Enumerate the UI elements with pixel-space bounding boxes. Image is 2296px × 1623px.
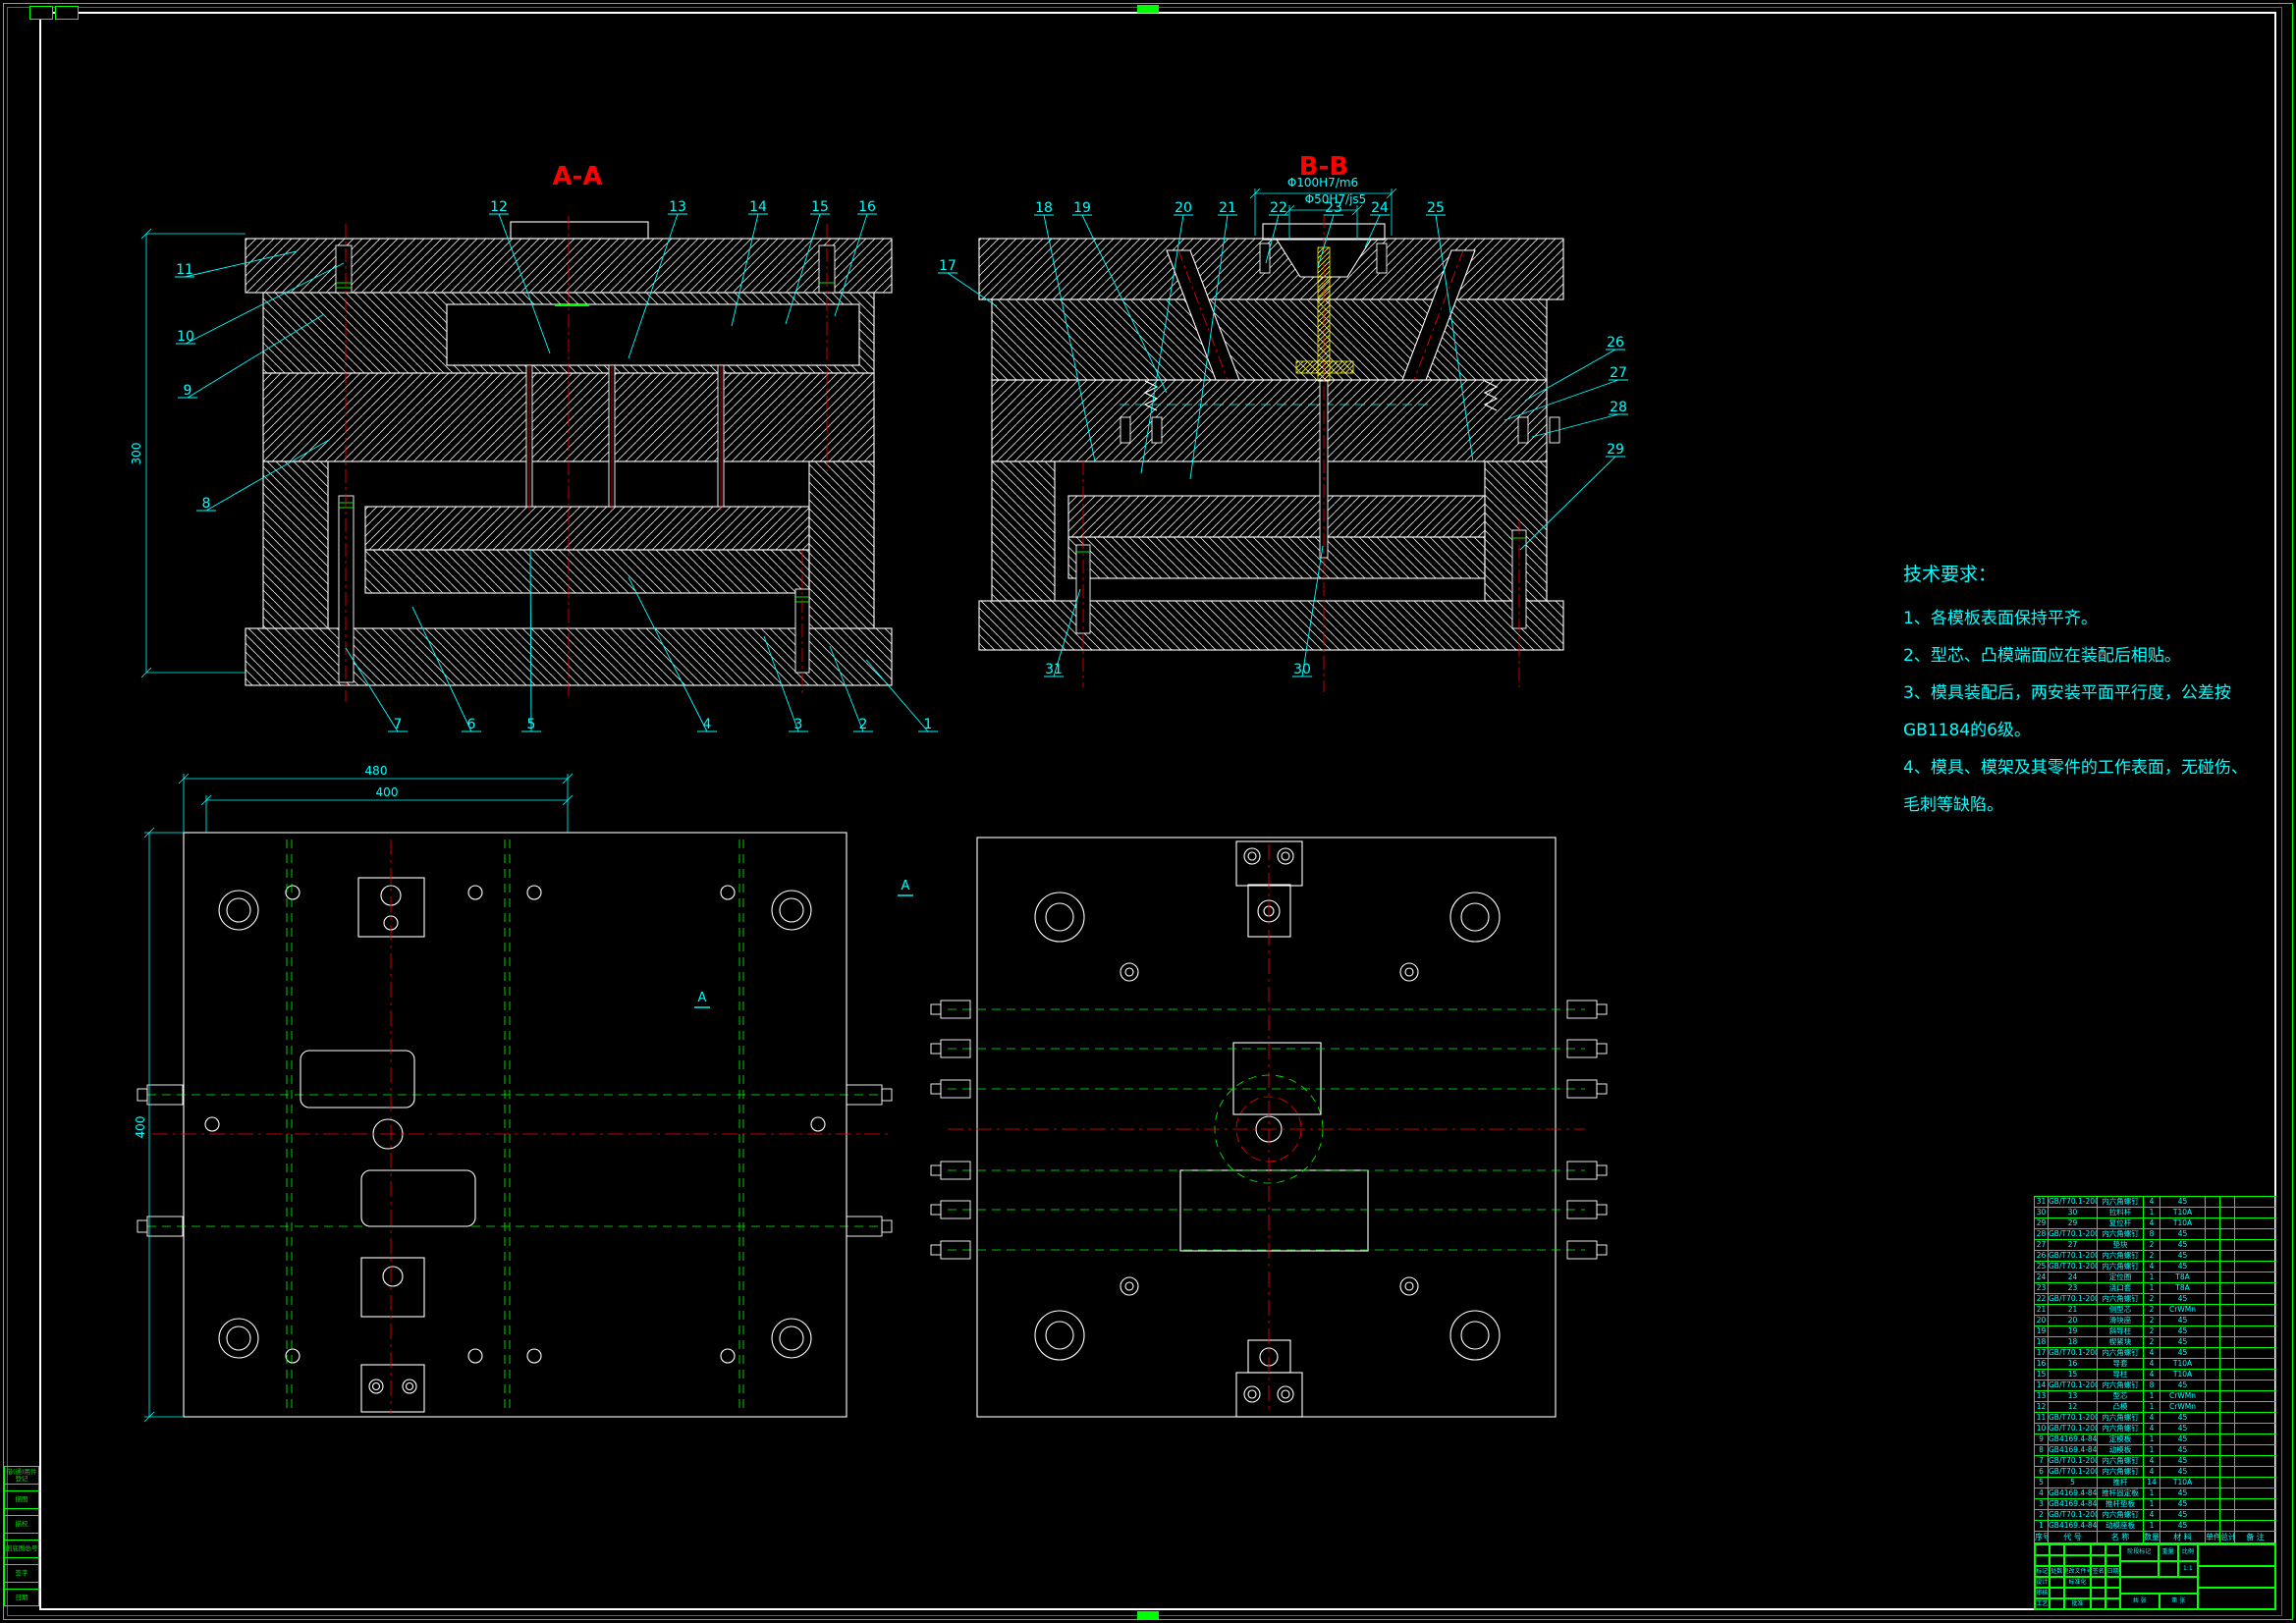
screw-holes [205, 886, 825, 1363]
parts-table-cell: 1 [2143, 1434, 2159, 1444]
parts-table-cell [2234, 1412, 2276, 1423]
parts-table-row: 1919斜导柱245 [2034, 1325, 2276, 1336]
tech-requirements-line: 3、模具装配后，两安装平面平行度，公差按 [1903, 675, 2267, 712]
parts-table-header-cell: 数量 [2143, 1531, 2159, 1543]
parts-table-cell: 45 [2159, 1336, 2205, 1347]
parts-table-row: 28GB/T70.1-2000内六角螺钉845 [2034, 1228, 2276, 1239]
parts-table-row: 2929复位杆4T10A [2034, 1217, 2276, 1228]
section-plane-mark: A [902, 879, 910, 893]
side-bolts [137, 1085, 892, 1236]
parts-table-cell [2219, 1261, 2234, 1271]
section-label: A-A [552, 162, 602, 191]
section-view-aa [141, 216, 892, 702]
parts-table-cell [2205, 1250, 2219, 1261]
parts-table-cell [2234, 1228, 2276, 1239]
parts-table-cell: 9 [2034, 1434, 2048, 1444]
parts-table-cell: 16 [2048, 1358, 2097, 1369]
drawing-sheet: 1213141516111098765432117181920212223242… [0, 0, 2296, 1623]
parts-table-cell: 定位圈 [2097, 1271, 2143, 1282]
tech-requirements-title: 技术要求： [1903, 560, 2267, 586]
callout-number: 1 [924, 717, 933, 732]
parts-table-cell: 22 [2034, 1293, 2048, 1304]
parts-table-row: 55推杆14T10A [2034, 1477, 2276, 1488]
parts-table-cell: CrWMn [2159, 1401, 2205, 1412]
parts-table-cell: 45 [2159, 1261, 2205, 1271]
callout-number: 21 [1219, 200, 1236, 216]
parts-table-cell: 19 [2034, 1325, 2048, 1336]
parts-list: 31GB/T70.1-2000内六角螺钉4453030拉料杆1T10A2929复… [2034, 1196, 2276, 1543]
parts-table-cell [2205, 1336, 2219, 1347]
parts-table-cell [2234, 1293, 2276, 1304]
parts-table-cell: 1 [2143, 1207, 2159, 1217]
parts-table-cell [2234, 1207, 2276, 1217]
parts-table-cell [2219, 1412, 2234, 1423]
parts-table-cell: GB4169.4-84 [2048, 1444, 2097, 1455]
parts-table-cell [2205, 1347, 2219, 1358]
tb-mark: 标记 [2035, 1566, 2050, 1577]
parts-table-cell: 45 [2159, 1466, 2205, 1477]
parts-table-cell: 2 [2034, 1509, 2048, 1520]
parts-table-cell: 15 [2048, 1369, 2097, 1380]
parts-table-cell: 23 [2048, 1282, 2097, 1293]
parts-table-cell: GB4169.4-84 [2048, 1498, 2097, 1509]
parts-table-cell: 45 [2159, 1434, 2205, 1444]
callout-number: 25 [1427, 200, 1445, 216]
parts-table-cell [2219, 1271, 2234, 1282]
parts-table-cell: 27 [2048, 1239, 2097, 1250]
parts-table-cell: 45 [2159, 1250, 2205, 1261]
parts-table-cell [2205, 1434, 2219, 1444]
callout-number: 19 [1073, 200, 1091, 216]
parts-table-cell [2234, 1401, 2276, 1412]
parts-table-cell: 18 [2034, 1336, 2048, 1347]
tb-design: 设计 [2035, 1577, 2050, 1588]
parts-table-cell: 复位杆 [2097, 1217, 2143, 1228]
margin-block-gap [4, 1508, 39, 1515]
tb-approve: 批准 [2064, 1598, 2092, 1609]
parts-table-cell: 12 [2048, 1401, 2097, 1412]
parts-table-cell [2219, 1423, 2234, 1434]
parts-table-cell [2219, 1466, 2234, 1477]
callout-number: 22 [1270, 200, 1287, 216]
parts-table-cell: 推杆 [2097, 1477, 2143, 1488]
parts-table-cell [2219, 1196, 2234, 1207]
parts-table-cell [2234, 1466, 2276, 1477]
plan-view-right [931, 838, 1607, 1417]
tech-requirements-line: 2、型芯、凸模端面应在装配后相贴。 [1903, 637, 2267, 675]
margin-block-label: 日期 [4, 1589, 39, 1606]
dimension-label: Φ50H7/js5 [1305, 192, 1367, 206]
parts-table-cell [2205, 1325, 2219, 1336]
tb-count: 处数 [2050, 1566, 2064, 1577]
parts-table-cell: 18 [2048, 1336, 2097, 1347]
parts-table-cell: 26 [2034, 1250, 2048, 1261]
parts-table-cell [2234, 1358, 2276, 1369]
parts-table-cell [2219, 1488, 2234, 1498]
parts-table-cell: 23 [2034, 1282, 2048, 1293]
parts-table-cell [2219, 1358, 2234, 1369]
section-plane-mark: A [698, 991, 707, 1005]
parts-table-cell [2205, 1315, 2219, 1325]
parts-table-cell: 内六角螺钉 [2097, 1412, 2143, 1423]
callout-number: 6 [467, 717, 476, 732]
parts-table-cell: 1 [2143, 1444, 2159, 1455]
parts-table-cell: 45 [2159, 1239, 2205, 1250]
parts-table-row: 2727垫块245 [2034, 1239, 2276, 1250]
parts-table-cell [2205, 1217, 2219, 1228]
tb-date: 日期 [2105, 1566, 2120, 1577]
parts-table-cell: 2 [2143, 1239, 2159, 1250]
margin-block-label: 签字 [4, 1564, 39, 1582]
parts-table-cell: 4 [2143, 1423, 2159, 1434]
parts-table-row: 1212凸模1CrWMn [2034, 1401, 2276, 1412]
tb-drawing-name-box [2198, 1544, 2275, 1566]
parts-table-cell: 内六角螺钉 [2097, 1196, 2143, 1207]
parts-table-cell: 45 [2159, 1380, 2205, 1390]
parts-table-cell: GB/T70.1-2000 [2048, 1380, 2097, 1390]
parts-table-cell [2205, 1380, 2219, 1390]
parts-table-cell [2205, 1488, 2219, 1498]
parts-table-row: 22GB/T70.1-2000内六角螺钉245 [2034, 1293, 2276, 1304]
parts-table-cell: 31 [2034, 1196, 2048, 1207]
dimension-label: 480 [365, 764, 388, 778]
parts-table-header-cell: 代 号 [2048, 1531, 2097, 1543]
parts-table-row: 1818楔紧块245 [2034, 1336, 2276, 1347]
parts-table-cell: 45 [2159, 1520, 2205, 1531]
parts-table-cell [2234, 1336, 2276, 1347]
parts-table-cell [2219, 1520, 2234, 1531]
parts-table-cell: CrWMn [2159, 1304, 2205, 1315]
parts-table-cell: 45 [2159, 1444, 2205, 1455]
parts-table-cell [2219, 1498, 2234, 1509]
callout-number: 3 [794, 717, 803, 732]
parts-table-cell: 内六角螺钉 [2097, 1250, 2143, 1261]
tb-process: 工艺 [2035, 1598, 2050, 1609]
tech-requirements-line: 毛刺等缺陷。 [1903, 786, 2267, 824]
parts-table-cell [2205, 1455, 2219, 1466]
parts-table-cell: 斜导柱 [2097, 1325, 2143, 1336]
parts-table-cell: 内六角螺钉 [2097, 1261, 2143, 1271]
parts-table-row: 4GB4169.4-84推杆固定板145 [2034, 1488, 2276, 1498]
parts-table-cell: GB/T70.1-2000 [2048, 1466, 2097, 1477]
parts-table-cell [2234, 1498, 2276, 1509]
dimension-label: 400 [376, 785, 399, 799]
parts-table-cell [2219, 1477, 2234, 1488]
parts-table-cell: 45 [2159, 1455, 2205, 1466]
parts-table-row: 3030拉料杆1T10A [2034, 1207, 2276, 1217]
parts-table-cell: 4 [2143, 1217, 2159, 1228]
tb-sheets-total: 共 张 [2120, 1594, 2159, 1610]
parts-table-cell: 4 [2143, 1261, 2159, 1271]
parts-table-cell [2234, 1325, 2276, 1336]
parts-table-cell: CrWMn [2159, 1390, 2205, 1401]
parts-table-cell [2219, 1444, 2234, 1455]
parts-table-cell [2219, 1207, 2234, 1217]
parts-table-cell [2205, 1509, 2219, 1520]
parts-table-header-cell: 单件 [2205, 1531, 2219, 1543]
callout-number: 16 [858, 199, 876, 215]
parts-table-cell: 导套 [2097, 1358, 2143, 1369]
parts-table-cell: 内六角螺钉 [2097, 1293, 2143, 1304]
parts-table-cell: 13 [2048, 1390, 2097, 1401]
section-view-bb [979, 189, 1563, 692]
callout-number: 15 [811, 199, 829, 215]
parts-table-cell: 10 [2034, 1423, 2048, 1434]
parts-table-cell: 凸模 [2097, 1401, 2143, 1412]
parts-table-cell: T8A [2159, 1282, 2205, 1293]
parts-table-cell [2234, 1239, 2276, 1250]
parts-table-cell: 45 [2159, 1228, 2205, 1239]
parts-table-cell: 30 [2034, 1207, 2048, 1217]
callout-number: 18 [1035, 200, 1053, 216]
parts-table-cell: 2 [2143, 1250, 2159, 1261]
parts-table-cell: 5 [2034, 1477, 2048, 1488]
parts-table-cell: T10A [2159, 1358, 2205, 1369]
parts-table-row: 25GB/T70.1-2000内六角螺钉445 [2034, 1261, 2276, 1271]
parts-table-cell: 45 [2159, 1325, 2205, 1336]
parts-table-cell: GB/T70.1-2000 [2048, 1509, 2097, 1520]
parts-table-cell: 2 [2143, 1304, 2159, 1315]
parts-table-cell: T10A [2159, 1207, 2205, 1217]
parts-table-cell [2219, 1455, 2234, 1466]
parts-table-row: 2020滑块座245 [2034, 1315, 2276, 1325]
margin-block-gap [4, 1533, 39, 1540]
plan-view-left [137, 774, 892, 1422]
parts-table-cell: 拉料杆 [2097, 1207, 2143, 1217]
parts-table-cell: T10A [2159, 1477, 2205, 1488]
parts-table-header-cell: 材 料 [2159, 1531, 2205, 1543]
parts-table-cell: 14 [2034, 1380, 2048, 1390]
parts-table-cell [2219, 1239, 2234, 1250]
callout-number: 20 [1175, 200, 1192, 216]
callout-number: 29 [1607, 442, 1624, 458]
parts-table-row: 1313型芯1CrWMn [2034, 1390, 2276, 1401]
parts-table-cell: GB/T70.1-2000 [2048, 1455, 2097, 1466]
guide-holes [1035, 893, 1500, 1360]
tech-requirements-line: GB1184的6级。 [1903, 712, 2267, 749]
callout-number: 31 [1045, 662, 1063, 677]
callout-leader [866, 660, 928, 731]
parts-table-row: 1515导柱4T10A [2034, 1369, 2276, 1380]
parts-table-cell: 45 [2159, 1196, 2205, 1207]
parts-table-cell: 5 [2048, 1477, 2097, 1488]
parts-table-cell: 16 [2034, 1358, 2048, 1369]
parts-table-cell: 27 [2034, 1239, 2048, 1250]
parts-table-cell [2205, 1228, 2219, 1239]
parts-table-cell [2234, 1455, 2276, 1466]
margin-block-gap [4, 1484, 39, 1490]
tech-requirements-line: 1、各模板表面保持平齐。 [1903, 600, 2267, 637]
parts-table-cell [2205, 1444, 2219, 1455]
callout-number: 30 [1293, 662, 1311, 677]
parts-table-cell [2234, 1509, 2276, 1520]
parts-table-cell: 45 [2159, 1347, 2205, 1358]
parts-table-cell [2205, 1261, 2219, 1271]
parts-table-cell [2205, 1304, 2219, 1315]
callout-number: 8 [202, 496, 211, 512]
parts-table-cell: 内六角螺钉 [2097, 1455, 2143, 1466]
margin-block-label: 借(通)用件登记 [4, 1466, 39, 1484]
parts-table-cell [2219, 1293, 2234, 1304]
parts-table-row: 7GB/T70.1-2000内六角螺钉445 [2034, 1455, 2276, 1466]
parts-table-row: 17GB/T70.1-2000内六角螺钉445 [2034, 1347, 2276, 1358]
parts-table-cell: GB/T70.1-2000 [2048, 1347, 2097, 1358]
parts-table-cell: 2 [2143, 1315, 2159, 1325]
parts-table-row: 2323浇口套1T8A [2034, 1282, 2276, 1293]
margin-block-gap [4, 1557, 39, 1564]
tb-company-box [2198, 1588, 2275, 1609]
callout-number: 26 [1607, 335, 1624, 351]
parts-table-cell [2234, 1488, 2276, 1498]
callout-number: 17 [939, 258, 957, 274]
parts-table-cell: 21 [2034, 1304, 2048, 1315]
tb-weight: 重量 [2159, 1544, 2178, 1561]
parts-table-cell: GB/T70.1-2000 [2048, 1228, 2097, 1239]
parts-table-cell: 24 [2048, 1271, 2097, 1282]
parts-table-cell: GB/T70.1-2000 [2048, 1293, 2097, 1304]
parts-table-cell [2205, 1239, 2219, 1250]
parts-table-row: 11GB/T70.1-2000内六角螺钉445 [2034, 1412, 2276, 1423]
tb-scale: 比例 [2178, 1544, 2198, 1561]
parts-table-cell: T10A [2159, 1217, 2205, 1228]
parts-table-cell: 1 [2143, 1271, 2159, 1282]
parts-table-cell [2219, 1228, 2234, 1239]
parts-table-cell [2219, 1304, 2234, 1315]
parts-table-cell: 1 [2143, 1520, 2159, 1531]
parts-table-header-cell: 总计 [2219, 1531, 2234, 1543]
callout-number: 4 [703, 717, 712, 732]
parts-table-cell: 14 [2143, 1477, 2159, 1488]
parts-table-cell: 30 [2048, 1207, 2097, 1217]
parts-table-cell [2205, 1423, 2219, 1434]
parts-table-cell [2234, 1250, 2276, 1261]
tb-standardize: 标准化 [2064, 1577, 2092, 1588]
parts-table-cell [2219, 1315, 2234, 1325]
parts-table-cell [2234, 1196, 2276, 1207]
parts-table-cell: 浇口套 [2097, 1282, 2143, 1293]
parts-table-cell [2234, 1217, 2276, 1228]
parts-table-cell: 8 [2143, 1228, 2159, 1239]
margin-block-label: 描图 [4, 1490, 39, 1508]
parts-table-cell [2219, 1217, 2234, 1228]
parts-table-cell: 滑块座 [2097, 1315, 2143, 1325]
parts-table-cell [2234, 1304, 2276, 1315]
parts-table-cell: 13 [2034, 1390, 2048, 1401]
parts-table-cell [2205, 1401, 2219, 1412]
parts-table-cell: 1 [2143, 1390, 2159, 1401]
parts-table-cell: T8A [2159, 1271, 2205, 1282]
parts-table-cell: 1 [2143, 1498, 2159, 1509]
parts-table-cell: 导柱 [2097, 1369, 2143, 1380]
parts-table-cell: 内六角螺钉 [2097, 1423, 2143, 1434]
parts-table-header-cell: 序号 [2034, 1531, 2048, 1543]
parts-table-cell: 2 [2143, 1336, 2159, 1347]
parts-table-cell: 28 [2034, 1228, 2048, 1239]
parts-table-cell [2219, 1347, 2234, 1358]
parts-table-cell: 1 [2143, 1488, 2159, 1498]
parts-table-cell: 45 [2159, 1488, 2205, 1498]
margin-block-label: 描校 [4, 1515, 39, 1533]
parts-table-cell: GB/T70.1-2000 [2048, 1196, 2097, 1207]
parts-table-cell: 动模板 [2097, 1444, 2143, 1455]
parts-table-cell: 4 [2143, 1196, 2159, 1207]
parts-table-cell: GB4169.4-84 [2048, 1434, 2097, 1444]
tb-sheet-no: 第 张 [2159, 1594, 2199, 1610]
parts-table-cell [2205, 1293, 2219, 1304]
parts-table-cell: GB4169.4-84 [2048, 1488, 2097, 1498]
parts-table-cell: 4 [2143, 1347, 2159, 1358]
parts-table-row: 1616导套4T10A [2034, 1358, 2276, 1369]
parts-table-cell [2219, 1250, 2234, 1261]
parts-table-cell: 定模板 [2097, 1434, 2143, 1444]
parts-table-cell: GB/T70.1-2000 [2048, 1423, 2097, 1434]
parts-table-cell: 2 [2143, 1293, 2159, 1304]
parts-table-row: 10GB/T70.1-2000内六角螺钉445 [2034, 1423, 2276, 1434]
parts-table-cell: 楔紧块 [2097, 1336, 2143, 1347]
callout-number: 24 [1371, 200, 1389, 216]
parts-table-cell: 25 [2034, 1261, 2048, 1271]
margin-blocks: 借(通)用件登记描图描校旧底图总号签字日期 [4, 1466, 39, 1606]
callout-number: 10 [177, 329, 194, 345]
technical-requirements: 技术要求： 1、各模板表面保持平齐。2、型芯、凸模端面应在装配后相贴。3、模具装… [1903, 560, 2267, 824]
parts-table-row: 9GB4169.4-84定模板145 [2034, 1434, 2276, 1444]
parts-table-cell [2234, 1315, 2276, 1325]
parts-table-cell: 推杆垫板 [2097, 1498, 2143, 1509]
parts-table-cell: 17 [2034, 1347, 2048, 1358]
tb-scale-value: 1:1 [2178, 1561, 2198, 1578]
parts-table-cell: GB/T70.1-2000 [2048, 1412, 2097, 1423]
parts-table-cell: 45 [2159, 1509, 2205, 1520]
parts-table-cell: 29 [2048, 1217, 2097, 1228]
parts-table-cell [2205, 1390, 2219, 1401]
parts-table-cell [2219, 1282, 2234, 1293]
parts-table-cell: 2 [2143, 1325, 2159, 1336]
parts-table-cell [2205, 1282, 2219, 1293]
parts-table-row: 8GB4169.4-84动模板145 [2034, 1444, 2276, 1455]
parts-table-cell: 24 [2034, 1271, 2048, 1282]
parts-table-cell: 内六角螺钉 [2097, 1228, 2143, 1239]
parts-table-cell: 45 [2159, 1293, 2205, 1304]
parts-table-cell: 垫块 [2097, 1239, 2143, 1250]
callout-number: 2 [859, 717, 868, 732]
parts-table-cell [2205, 1520, 2219, 1531]
title-block: 标记 处数 更改文件号 签名 日期 设计 标准化 审核 工艺 批准 [2034, 1543, 2276, 1610]
tb-drawing-number-box [2198, 1566, 2275, 1588]
callout-number: 7 [394, 717, 403, 732]
parts-table-cell [2205, 1271, 2219, 1282]
parts-table-cell: 8 [2034, 1444, 2048, 1455]
parts-table-row: 26GB/T70.1-2000内六角螺钉245 [2034, 1250, 2276, 1261]
parts-table-row: 3GB4169.4-84推杆垫板145 [2034, 1498, 2276, 1509]
tech-requirements-line: 4、模具、模架及其零件的工作表面，无碰伤、 [1903, 749, 2267, 786]
parts-table-cell: 内六角螺钉 [2097, 1380, 2143, 1390]
section-label: B-B [1299, 152, 1348, 182]
parts-table-cell [2234, 1271, 2276, 1282]
parts-table-cell: 20 [2048, 1315, 2097, 1325]
parts-table-row: 14GB/T70.1-2000内六角螺钉845 [2034, 1380, 2276, 1390]
guide-holes [219, 891, 811, 1358]
parts-table-cell: 4 [2143, 1369, 2159, 1380]
parts-table-cell [2219, 1369, 2234, 1380]
tb-stage-mark: 阶段标记 [2120, 1544, 2159, 1561]
parts-table-cell [2219, 1390, 2234, 1401]
parts-table-cell: 21 [2048, 1304, 2097, 1315]
parts-table-cell [2234, 1477, 2276, 1488]
callout-number: 13 [669, 199, 686, 215]
parts-table-row: 2GB/T70.1-2000内六角螺钉445 [2034, 1509, 2276, 1520]
parts-table-cell: T10A [2159, 1369, 2205, 1380]
parts-table-cell [2219, 1325, 2234, 1336]
